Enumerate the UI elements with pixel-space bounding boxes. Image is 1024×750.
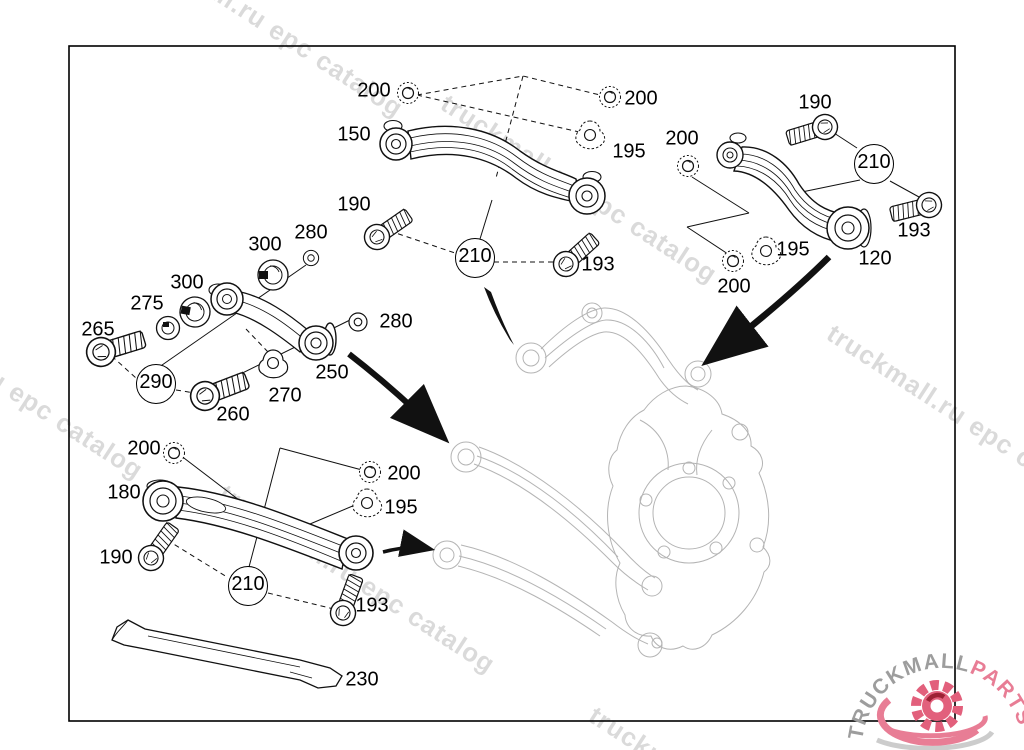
bolt-190: [134, 519, 184, 576]
part-number-label[interactable]: 270: [268, 385, 301, 408]
arm-150: [380, 121, 605, 215]
part-group-circle[interactable]: 290: [136, 364, 176, 404]
part-number-label[interactable]: 200: [665, 128, 698, 151]
part-number-label[interactable]: 190: [798, 92, 831, 115]
part-number-label[interactable]: 190: [337, 194, 370, 217]
part-number-label[interactable]: 200: [717, 276, 750, 299]
part-number-label[interactable]: 260: [216, 404, 249, 427]
part-group-circle[interactable]: 210: [854, 144, 894, 184]
parts-diagram-page: truckmall.ru epc catalogtruckmall.ru epc…: [0, 0, 1024, 750]
bracket-270: [259, 350, 288, 378]
part-number-label[interactable]: 230: [345, 669, 378, 692]
part-number-label[interactable]: 265: [81, 319, 114, 342]
part-number-label[interactable]: 280: [379, 311, 412, 334]
washer-280: [303, 250, 318, 265]
part-number-label[interactable]: 195: [384, 497, 417, 520]
link-250: [209, 283, 336, 360]
stabilizer-link-230: [112, 620, 342, 688]
part-number-label[interactable]: 300: [170, 272, 203, 295]
part-number-label[interactable]: 200: [127, 438, 160, 461]
cam-washer-300: [178, 295, 213, 330]
part-number-label[interactable]: 120: [858, 248, 891, 271]
washer-280: [349, 313, 367, 331]
part-number-label[interactable]: 193: [355, 595, 388, 618]
brand-logo: TRUCKMALLPARTS: [832, 632, 1024, 750]
nut-200: [678, 156, 699, 177]
logo-text-secondary: PARTS: [967, 656, 1024, 729]
part-group-circle[interactable]: 210: [455, 238, 495, 278]
part-number-label[interactable]: 280: [294, 222, 327, 245]
part-number-label[interactable]: 195: [776, 239, 809, 262]
part-number-label[interactable]: 193: [581, 254, 614, 277]
nut-200: [164, 443, 185, 464]
part-number-label[interactable]: 190: [99, 547, 132, 570]
nut-200: [360, 462, 381, 483]
part-number-label[interactable]: 193: [897, 220, 930, 243]
bolt-190: [784, 111, 841, 150]
part-number-label[interactable]: 200: [387, 463, 420, 486]
nut-200: [398, 83, 419, 104]
washer-195: [576, 121, 605, 149]
nut-200: [723, 251, 744, 272]
arm-180: [143, 480, 373, 570]
washer-275: [157, 317, 180, 340]
knuckle-assembly: [433, 303, 770, 657]
part-number-label[interactable]: 180: [107, 482, 140, 505]
cam-washer-300: [258, 260, 288, 290]
part-group-circle[interactable]: 210: [228, 566, 268, 606]
part-number-label[interactable]: 150: [337, 124, 370, 147]
nut-200: [600, 87, 621, 108]
part-number-label[interactable]: 300: [248, 234, 281, 257]
arm-120: [717, 133, 871, 249]
part-number-label[interactable]: 195: [612, 141, 645, 164]
part-number-label[interactable]: 200: [357, 80, 390, 103]
part-number-label[interactable]: 200: [624, 88, 657, 111]
part-number-label[interactable]: 250: [315, 362, 348, 385]
washer-195: [353, 489, 382, 517]
gear-icon: [877, 685, 992, 748]
part-number-label[interactable]: 275: [130, 293, 163, 316]
